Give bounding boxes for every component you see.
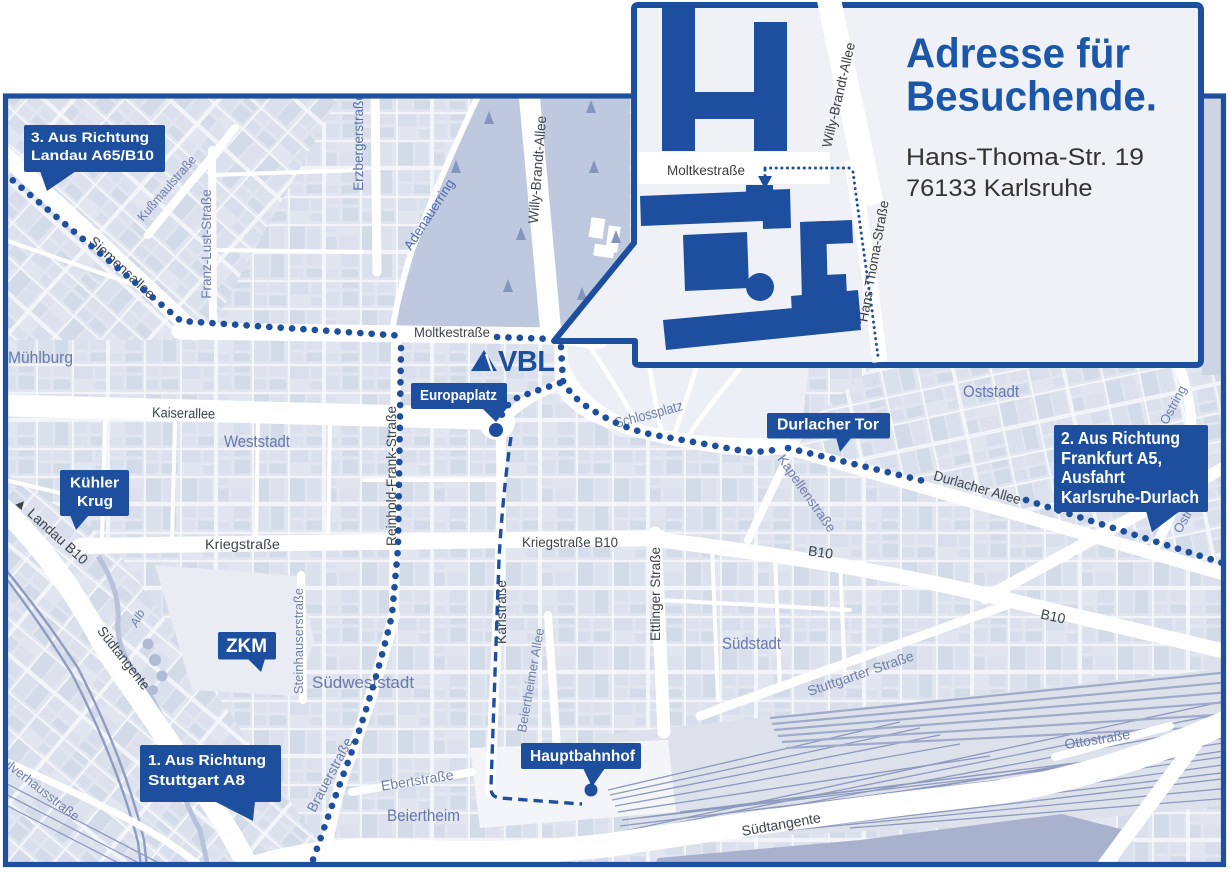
svg-text:Weststadt: Weststadt bbox=[224, 432, 290, 451]
svg-text:Steinhauserstraße: Steinhauserstraße bbox=[291, 588, 306, 694]
svg-text:Besuchende.: Besuchende. bbox=[906, 73, 1157, 120]
svg-text:76133 Karlsruhe: 76133 Karlsruhe bbox=[906, 175, 1093, 202]
svg-text:Karlsruhe-Durlach: Karlsruhe-Durlach bbox=[1061, 487, 1199, 507]
svg-text:Ausfahrt: Ausfahrt bbox=[1061, 467, 1125, 487]
svg-text:3. Aus Richtung: 3. Aus Richtung bbox=[31, 129, 149, 145]
svg-text:Ettlinger Straße: Ettlinger Straße bbox=[647, 547, 663, 641]
svg-text:Frankfurt A5,: Frankfurt A5, bbox=[1061, 448, 1162, 468]
svg-text:Südweststadt: Südweststadt bbox=[312, 673, 414, 692]
svg-text:Mühlburg: Mühlburg bbox=[8, 348, 73, 367]
svg-text:Durlacher Tor: Durlacher Tor bbox=[777, 417, 879, 434]
svg-text:Oststadt: Oststadt bbox=[963, 382, 1019, 401]
svg-text:Hans-Thoma-Str. 19: Hans-Thoma-Str. 19 bbox=[906, 144, 1144, 171]
svg-text:Krug: Krug bbox=[77, 493, 113, 510]
svg-text:Beiertheim: Beiertheim bbox=[387, 806, 460, 825]
svg-text:Kaiserallee: Kaiserallee bbox=[152, 404, 216, 422]
svg-text:Karlstraße: Karlstraße bbox=[493, 580, 509, 644]
svg-text:2. Aus Richtung: 2. Aus Richtung bbox=[1061, 428, 1180, 448]
svg-text:Moltkestraße: Moltkestraße bbox=[667, 163, 745, 178]
svg-text:Reinhold-Frank-Straße: Reinhold-Frank-Straße bbox=[383, 406, 399, 546]
svg-text:VBL: VBL bbox=[498, 346, 555, 378]
svg-text:Franz-Lust-Straße: Franz-Lust-Straße bbox=[199, 189, 214, 299]
svg-text:Kriegstraße B10: Kriegstraße B10 bbox=[522, 534, 618, 550]
svg-text:Kriegstraße: Kriegstraße bbox=[205, 536, 280, 552]
svg-text:Südstadt: Südstadt bbox=[722, 634, 781, 653]
svg-text:1. Aus Richtung: 1. Aus Richtung bbox=[148, 752, 266, 769]
svg-text:ZKM: ZKM bbox=[226, 636, 267, 657]
svg-text:Europaplatz: Europaplatz bbox=[420, 387, 497, 404]
svg-text:Stuttgart A8: Stuttgart A8 bbox=[148, 772, 245, 789]
svg-text:Moltkestraße: Moltkestraße bbox=[414, 324, 490, 340]
svg-text:Landau A65/B10: Landau A65/B10 bbox=[31, 147, 154, 163]
svg-text:Kühler: Kühler bbox=[70, 475, 119, 492]
svg-text:Hauptbahnhof: Hauptbahnhof bbox=[530, 748, 636, 765]
svg-text:Erzbergerstraße: Erzbergerstraße bbox=[351, 93, 366, 191]
svg-text:Adresse für: Adresse für bbox=[906, 30, 1130, 77]
